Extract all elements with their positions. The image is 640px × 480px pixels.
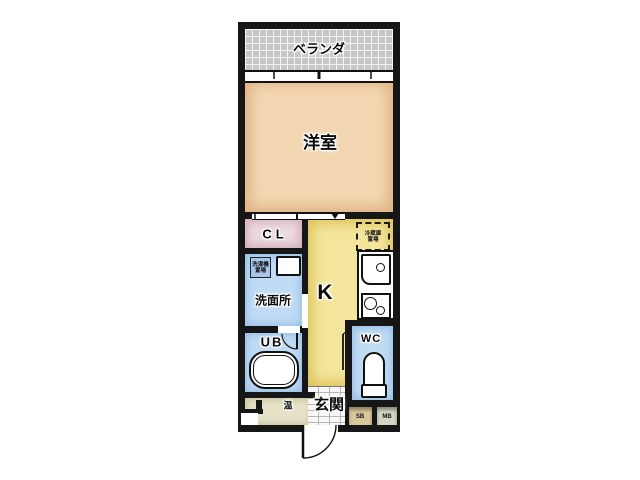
wall-wc-top	[345, 320, 400, 326]
burner-large	[364, 297, 377, 310]
washbasin	[276, 256, 301, 276]
burner-small	[376, 306, 385, 315]
water-heater-box	[241, 413, 258, 425]
wall-outer-left	[238, 22, 245, 432]
western-room-label: 洋室	[303, 129, 337, 154]
entrance-door-gap	[302, 425, 338, 432]
refrigerator-space: 冷蔵庫 置場	[356, 222, 390, 251]
faucet-knob	[376, 263, 385, 272]
wall-closet-bottom	[245, 248, 308, 254]
wall-outer-top	[238, 22, 400, 29]
washroom-label: 洗面所	[255, 292, 291, 309]
washroom-door-gap	[302, 292, 308, 330]
closet-label: CL	[262, 227, 287, 242]
toilet-label: WC	[361, 333, 381, 345]
bath-door-gap	[278, 326, 300, 333]
toilet-tank	[361, 384, 387, 398]
meter-box-label: MB	[382, 414, 391, 420]
veranda-window	[245, 70, 393, 83]
sliding-doors-room	[252, 213, 345, 220]
wall-outer-right	[393, 22, 400, 432]
floor-plan: 洗濯機 置場 冷蔵庫 置場 ベランダ 洋室 C	[0, 0, 640, 480]
water-heater-label: 温	[283, 399, 292, 412]
entrance-label: 玄関	[314, 394, 344, 415]
veranda-label: ベランダ	[293, 39, 345, 58]
shoe-box-label: SB	[356, 414, 364, 420]
bathtub-inner	[253, 355, 295, 385]
wall-wc-left	[345, 320, 352, 407]
unit-bath-label: UB	[261, 335, 284, 350]
fridge-note-line2: 置場	[358, 237, 388, 243]
wall-bath-bottom	[245, 392, 315, 398]
kitchen-label: K	[317, 281, 332, 305]
toilet-bowl	[363, 352, 385, 387]
washing-machine-pad: 洗濯機 置場	[250, 257, 271, 278]
washer-note-line2: 置場	[251, 268, 270, 274]
